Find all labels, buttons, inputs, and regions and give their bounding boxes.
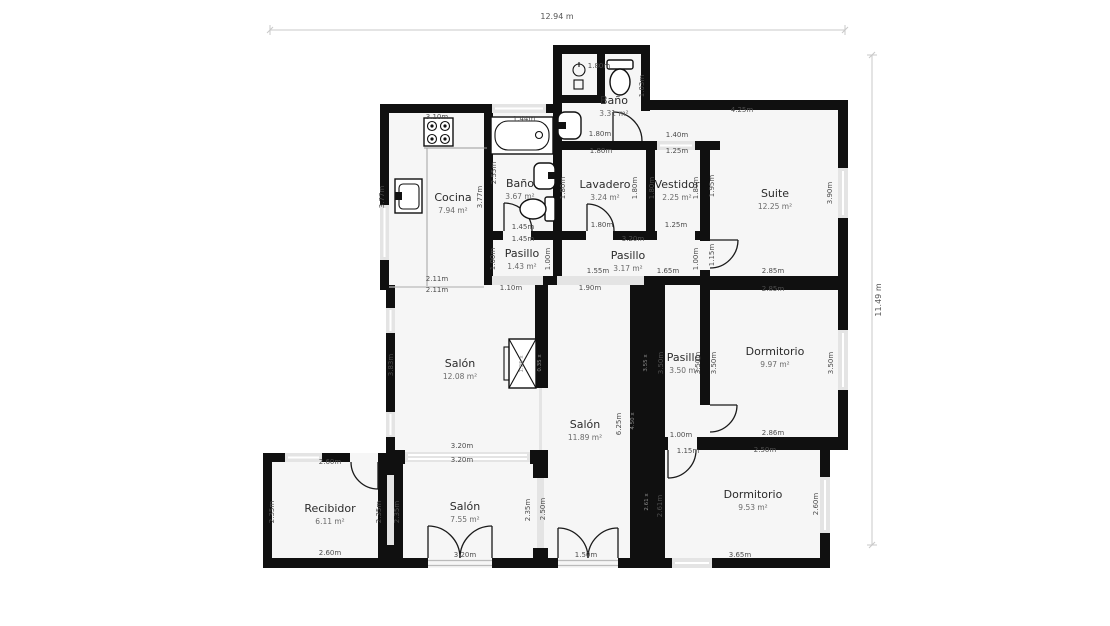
dim-label-50: 2.35m (393, 501, 401, 524)
room-area-lavadero: 3.24 m² (590, 193, 619, 202)
room-label-lavadero: Lavadero (580, 178, 631, 191)
window-salon-1-left-upper (386, 308, 395, 333)
dim-label-47: 2.60m (319, 458, 342, 466)
dim-label-43: 2.86m (762, 429, 785, 437)
room-label-bano-mid: Baño (506, 177, 534, 190)
window-dormitorio-2-bottom (672, 558, 712, 568)
window-suite-right (838, 168, 848, 218)
dim-label-14: 1.80m (648, 177, 656, 200)
dim-label-0: 1.80m (588, 62, 611, 70)
floor-plan-canvas: 12.94 m 11.49 m (0, 0, 1110, 626)
kitchen-sink-icon (395, 179, 422, 213)
dim-label-33: 2.11m (426, 275, 449, 283)
dim-label-24: 1.00m (544, 248, 552, 271)
dim-label-12: 1.80m (559, 177, 567, 200)
room-area-suite: 12.25 m² (758, 202, 792, 211)
dim-label-54: 2.60m (812, 493, 820, 516)
faint-label-4: 1.05 x (519, 355, 525, 373)
dim-label-3: 1.80m (590, 147, 613, 155)
room-area-salon-3: 7.55 m² (450, 515, 479, 524)
window-dormitorio-1-right (838, 330, 848, 390)
dim-label-18: 1.45m (512, 223, 535, 231)
room-area-dormitorio-2: 9.53 m² (738, 503, 767, 512)
room-label-dormitorio-1: Dormitorio (746, 345, 805, 358)
dim-label-26: 1.15m (708, 244, 716, 267)
faint-label-2: 2.61 x (644, 493, 650, 511)
dim-label-28: 1.65m (657, 267, 680, 275)
dim-label-40: 3.50m (827, 352, 835, 375)
faint-label-1: 4.50 x (630, 412, 636, 430)
room-area-salon-1: 12.08 m² (443, 372, 477, 381)
dim-label-25: 1.00m (692, 248, 700, 271)
dim-label-42: 3.20m (451, 456, 474, 464)
dim-label-31: 1.90m (579, 284, 602, 292)
dim-label-9: 2.55m (490, 162, 498, 185)
room-area-pasillo-1: 1.43 m² (507, 262, 536, 271)
dim-label-38: 3.50m (694, 352, 702, 375)
dim-label-48: 2.35m (268, 501, 276, 524)
room-area-pasillo-2: 3.17 m² (613, 264, 642, 273)
dim-label-15: 1.80m (692, 177, 700, 200)
dim-label-58: 3.65m (729, 551, 752, 559)
room-area-dormitorio-1: 9.97 m² (760, 360, 789, 369)
dim-label-6: 4.25m (731, 106, 754, 114)
room-label-salon-2: Salón (570, 418, 601, 431)
dim-label-4: 1.40m (666, 131, 689, 139)
dim-label-22: 3.20m (622, 235, 645, 243)
stove-icon (424, 118, 453, 146)
room-label-pasillo-2: Pasillo (611, 249, 646, 262)
dim-label-41: 3.20m (451, 442, 474, 450)
dim-label-44: 2.50m (754, 446, 777, 454)
dim-label-35: 3.83m (387, 354, 395, 377)
dim-label-16: 1.95m (708, 175, 716, 198)
dim-label-53: 2.61m (656, 495, 664, 518)
dim-label-7: 3.10m (426, 113, 449, 121)
salon1-salon2-boundary (539, 388, 542, 450)
dim-label-5: 1.25m (666, 147, 689, 155)
dim-label-10: 3.77m (476, 186, 484, 209)
room-label-recibidor: Recibidor (304, 502, 356, 515)
dim-label-52: 2.50m (539, 498, 547, 521)
dim-label-51: 2.35m (524, 499, 532, 522)
faint-label-0: 3.55 x (643, 354, 649, 372)
room-label-dormitorio-2: Dormitorio (724, 488, 783, 501)
dim-label-55: 2.60m (319, 549, 342, 557)
dim-label-37: 3.50m (657, 352, 665, 375)
room-area-bano-top: 3.31 m² (599, 109, 628, 118)
dim-label-46: 1.15m (677, 447, 700, 455)
room-area-salon-2: 11.89 m² (568, 433, 602, 442)
window-salon-1-left-lower (386, 412, 395, 437)
window-bano-mid-top (492, 104, 546, 113)
dim-label-34: 2.11m (426, 286, 449, 294)
dim-label-45: 1.00m (670, 431, 693, 439)
dim-label-20: 1.80m (591, 221, 614, 229)
window-dormitorio-2-right (820, 477, 830, 533)
room-area-vestidor: 2.25 m² (662, 193, 691, 202)
room-label-pasillo-1: Pasillo (505, 247, 540, 260)
dimension-line-top: 12.94 m (267, 12, 848, 35)
window-recibidor-top (285, 453, 322, 462)
dim-label-21: 1.25m (665, 221, 688, 229)
dim-label-19: 1.45m (512, 235, 535, 243)
room-label-salon-1: Salón (445, 357, 476, 370)
dimension-line-right: 11.49 m (867, 52, 883, 548)
dim-label-27: 1.55m (587, 267, 610, 275)
dim-label-13: 1.80m (631, 177, 639, 200)
room-area-recibidor: 6.11 m² (315, 517, 344, 526)
dim-label-30: 1.10m (500, 284, 523, 292)
dim-label-39: 3.50m (710, 352, 718, 375)
dim-label-32: 2.85m (762, 285, 785, 293)
dim-label-1: 1.03m (638, 75, 646, 98)
dim-label-17: 3.90m (826, 182, 834, 205)
dim-label-49: 2.35m (375, 501, 383, 524)
dim-label-2: 1.80m (589, 130, 612, 138)
room-label-bano-top: Baño (600, 94, 628, 107)
room-area-bano-mid: 3.67 m² (505, 192, 534, 201)
room-label-suite: Suite (761, 187, 789, 200)
dim-label-56: 3.20m (454, 551, 477, 559)
dim-label-36: 6.25m (615, 413, 623, 436)
floor-plan-page: 12.94 m 11.49 m (0, 0, 1110, 626)
washbasin-bano-mid-icon (534, 163, 555, 189)
total-width-label: 12.94 m (540, 12, 573, 21)
dim-label-57: 1.50m (575, 551, 598, 559)
faint-label-3: 0.35 x (537, 354, 543, 372)
dim-label-23: 1.00m (489, 248, 497, 271)
room-area-cocina: 7.94 m² (438, 206, 467, 215)
total-height-label: 11.49 m (874, 283, 883, 316)
washbasin-bano-top-icon (558, 112, 581, 139)
dim-label-29: 2.85m (762, 267, 785, 275)
room-label-salon-3: Salón (450, 500, 481, 513)
dim-label-11: 3.77m (378, 186, 386, 209)
room-label-cocina: Cocina (434, 191, 471, 204)
window-cocina-left (380, 205, 389, 260)
dim-label-8: 1.44m (513, 115, 536, 123)
